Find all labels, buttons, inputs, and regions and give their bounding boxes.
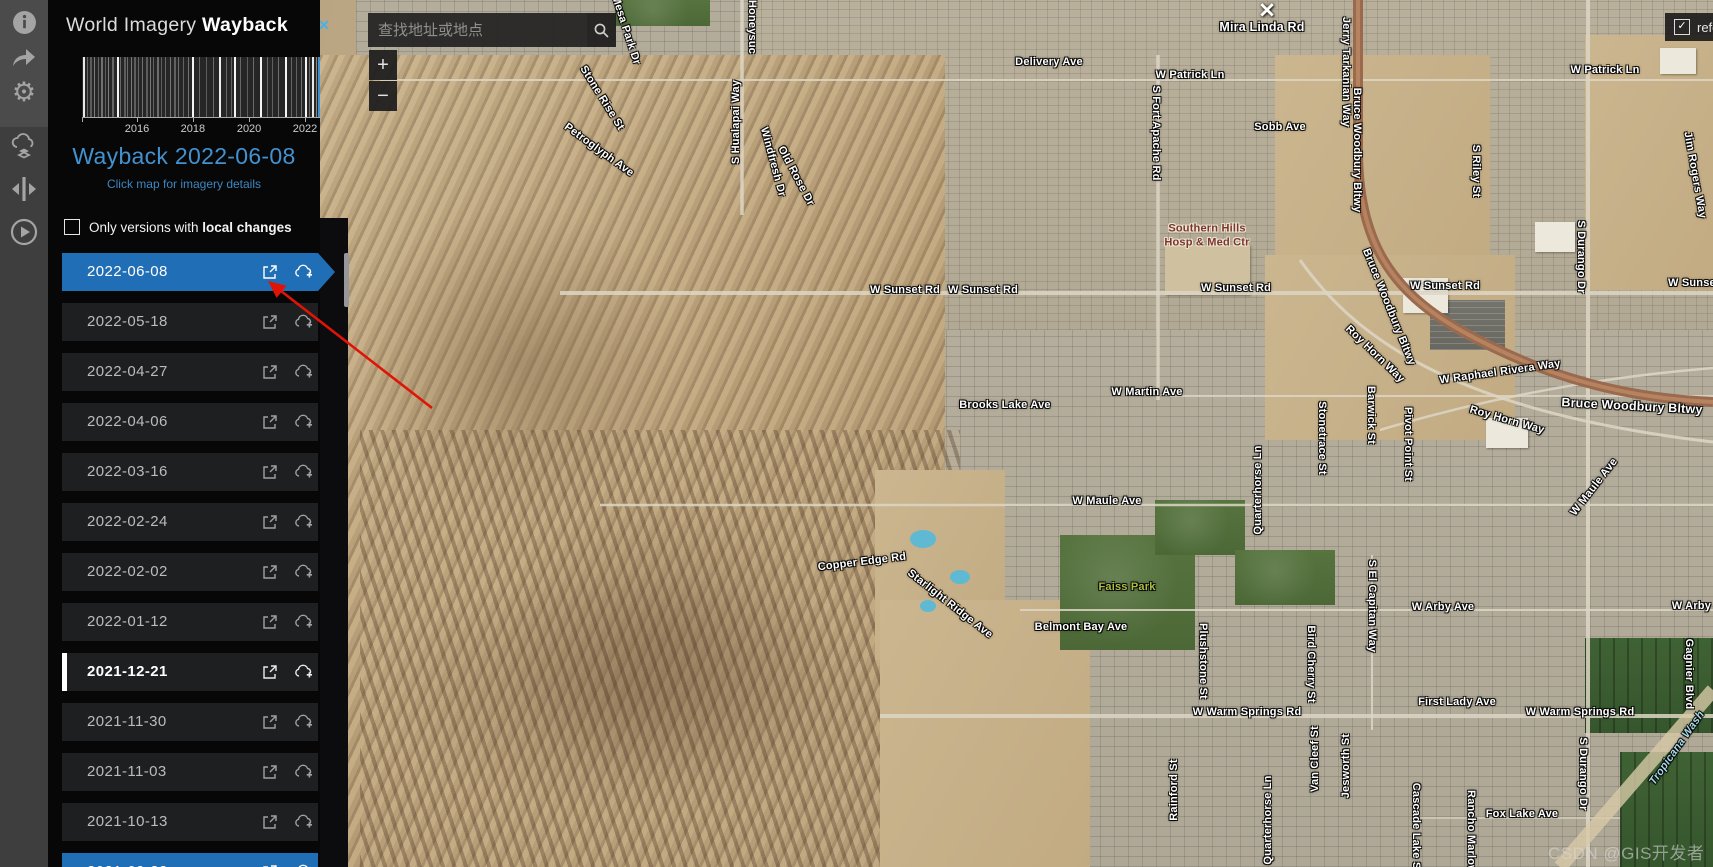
version-date: 2022-02-24 [87, 513, 168, 530]
map-street-label: W Martin Ave [1111, 386, 1182, 398]
map-poi-label: Southern Hills Hosp & Med Ctr [1164, 222, 1249, 250]
map-street-label: S Hualapai Way [730, 80, 742, 164]
map-street-label: Fox Lake Ave [1486, 808, 1559, 820]
map-street-label: Bird Cherry St [1305, 625, 1317, 702]
wayback-export-icon[interactable] [0, 129, 48, 163]
map-street-label: Honeysuc [746, 0, 758, 54]
version-item[interactable]: 2021-10-13 [62, 803, 318, 841]
zoom-out-button[interactable]: − [369, 81, 397, 111]
version-date: 2022-05-18 [87, 313, 168, 330]
add-to-cloud-icon[interactable] [294, 363, 315, 384]
open-item-icon[interactable] [262, 814, 278, 835]
map-street-label: Plushstone St [1197, 623, 1209, 699]
map-cross-marker-icon: ✕ [1258, 0, 1276, 24]
map-street-label: Quarterhorse Ln [1252, 445, 1264, 534]
map-street-label: Pivot Point St [1402, 407, 1414, 481]
info-icon[interactable] [0, 5, 48, 39]
settings-gear-icon[interactable]: ⚙ [0, 75, 48, 109]
map-street-label: Cascade Lake St [1410, 783, 1422, 867]
map-street-label: Bruce Woodbury Bltwy [1351, 88, 1363, 213]
map-street-label: S El Capitan Way [1366, 560, 1378, 653]
map-street-label: Gagnier Blvd [1683, 639, 1695, 710]
version-item[interactable]: 2022-04-27 [62, 353, 318, 391]
list-scroll-gutter [320, 218, 348, 867]
version-date: 2021-09-22 [87, 863, 168, 867]
share-icon[interactable] [0, 40, 48, 74]
map-street-label: W Maule Ave [1072, 495, 1141, 507]
version-item[interactable]: 2021-11-03 [62, 753, 318, 791]
map-street-label: Rancho Marlow [1465, 790, 1477, 867]
version-date: 2022-04-06 [87, 413, 168, 430]
version-date: 2021-12-21 [87, 663, 168, 680]
map-street-label: W Sunset Rd [948, 284, 1018, 296]
map-street-label: Rainford St [1168, 759, 1180, 820]
open-item-icon[interactable] [262, 464, 278, 485]
search-button[interactable] [587, 13, 616, 47]
map-street-label: Jesworth St [1340, 734, 1352, 799]
open-item-icon[interactable] [262, 414, 278, 435]
version-item[interactable]: 2022-02-02 [62, 553, 318, 591]
version-date: 2021-11-30 [87, 713, 167, 730]
map-street-label: Stonetrace St [1316, 401, 1328, 475]
version-item[interactable]: 2021-12-21 [62, 653, 318, 691]
version-item[interactable]: 2021-11-30 [62, 703, 318, 741]
map-street-label: W Sunset Rd [870, 284, 940, 296]
version-date: 2021-11-03 [87, 763, 167, 780]
map-street-label: Brooks Lake Ave [959, 399, 1050, 411]
add-to-cloud-icon[interactable] [294, 613, 315, 634]
map-street-label: S Riley St [1470, 145, 1482, 198]
version-date: 2022-04-27 [87, 363, 168, 380]
open-item-icon[interactable] [262, 264, 278, 285]
search-icon [593, 22, 610, 39]
map-street-label: W Warm Springs Rd [1193, 706, 1302, 718]
map-street-label: S Fort Apache Rd [1150, 85, 1162, 180]
reference-layer-toggle[interactable]: ✓ refe [1665, 13, 1713, 41]
map-street-label: S Durango Dr [1575, 220, 1587, 293]
left-toolbar: ⚙ [0, 0, 48, 867]
axis-tick [320, 118, 321, 122]
map-street-label: Van Cleef St [1309, 726, 1321, 792]
add-to-cloud-icon[interactable] [294, 713, 315, 734]
add-to-cloud-icon[interactable] [294, 863, 315, 867]
map-street-label: Quarterhorse Ln [1262, 775, 1274, 864]
swipe-compare-icon[interactable] [0, 172, 48, 206]
app-window: HoneysucS Hualapai WayMesa Park DrStone … [0, 0, 1713, 867]
clear-search-x-icon[interactable]: ✕ [320, 17, 330, 34]
map-street-label: S Durango Dr [1577, 737, 1589, 810]
open-item-icon[interactable] [262, 564, 278, 585]
open-item-icon[interactable] [262, 614, 278, 635]
add-to-cloud-icon[interactable] [294, 513, 315, 534]
map-street-label: W Patrick Ln [1570, 64, 1639, 76]
add-to-cloud-icon[interactable] [294, 463, 315, 484]
version-item[interactable]: 2022-06-08 [62, 253, 318, 291]
add-to-cloud-icon[interactable] [294, 313, 315, 334]
add-to-cloud-icon[interactable] [294, 763, 315, 784]
version-date: 2021-10-13 [87, 813, 168, 830]
reference-toggle-label: refe [1697, 20, 1713, 35]
search-input[interactable] [368, 13, 587, 47]
sidebar: World Imagery Wayback 2016201820202022 W… [48, 0, 320, 867]
map-canvas[interactable]: HoneysucS Hualapai WayMesa Park DrStone … [320, 0, 1713, 867]
checkbox-checked-icon[interactable]: ✓ [1674, 19, 1690, 35]
version-date: 2022-01-12 [87, 613, 168, 630]
scrollbar-thumb[interactable] [344, 253, 349, 307]
map-street-label: Belmont Bay Ave [1035, 621, 1128, 633]
animation-play-icon[interactable] [0, 215, 48, 249]
version-list: 2022-06-082022-05-182022-04-272022-04-06… [48, 0, 320, 867]
open-item-icon[interactable] [262, 514, 278, 535]
map-street-label: W Warm Springs Rd [1526, 706, 1635, 718]
map-street-label: Delivery Ave [1015, 56, 1083, 68]
add-to-cloud-icon[interactable] [294, 413, 315, 434]
open-item-icon[interactable] [262, 364, 278, 385]
version-date: 2022-02-02 [87, 563, 168, 580]
version-item[interactable]: 2021-09-22 [62, 853, 318, 867]
version-date: 2022-06-08 [87, 263, 168, 280]
version-item[interactable]: 2022-05-18 [62, 303, 318, 341]
map-street-label: Sobb Ave [1254, 121, 1306, 133]
version-item[interactable]: 2022-01-12 [62, 603, 318, 641]
version-item[interactable]: 2022-04-06 [62, 403, 318, 441]
open-item-icon[interactable] [262, 664, 278, 685]
open-item-icon[interactable] [262, 764, 278, 785]
map-street-label: W Sunset Rd [1410, 280, 1480, 292]
watermark: CSDN @GIS开发者 [1548, 839, 1713, 864]
add-to-cloud-icon[interactable] [294, 663, 315, 684]
add-to-cloud-icon[interactable] [294, 563, 315, 584]
open-item-icon[interactable] [262, 314, 278, 335]
zoom-in-button[interactable]: + [369, 50, 397, 80]
add-to-cloud-icon[interactable] [294, 813, 315, 834]
map-street-label: W Patrick Ln [1155, 69, 1224, 81]
roads-layer [320, 0, 1713, 867]
map-street-label: Barwick St [1365, 386, 1377, 444]
map-street-label: W Arby Ave [1412, 601, 1475, 613]
search-bar [368, 13, 604, 47]
map-street-label: First Lady Ave [1418, 696, 1496, 708]
version-item[interactable]: 2022-02-24 [62, 503, 318, 541]
open-item-icon[interactable] [262, 714, 278, 735]
map-park-label: Faiss Park [1098, 581, 1155, 593]
version-date: 2022-03-16 [87, 463, 168, 480]
add-to-cloud-icon[interactable] [294, 263, 315, 284]
map-street-label: W Sunset Rd [1668, 277, 1713, 289]
map-street-label: W Sunset Rd [1201, 282, 1271, 294]
version-item[interactable]: 2022-03-16 [62, 453, 318, 491]
map-street-label: W Arby Ave [1672, 600, 1713, 612]
zoom-controls: + − [369, 50, 397, 112]
